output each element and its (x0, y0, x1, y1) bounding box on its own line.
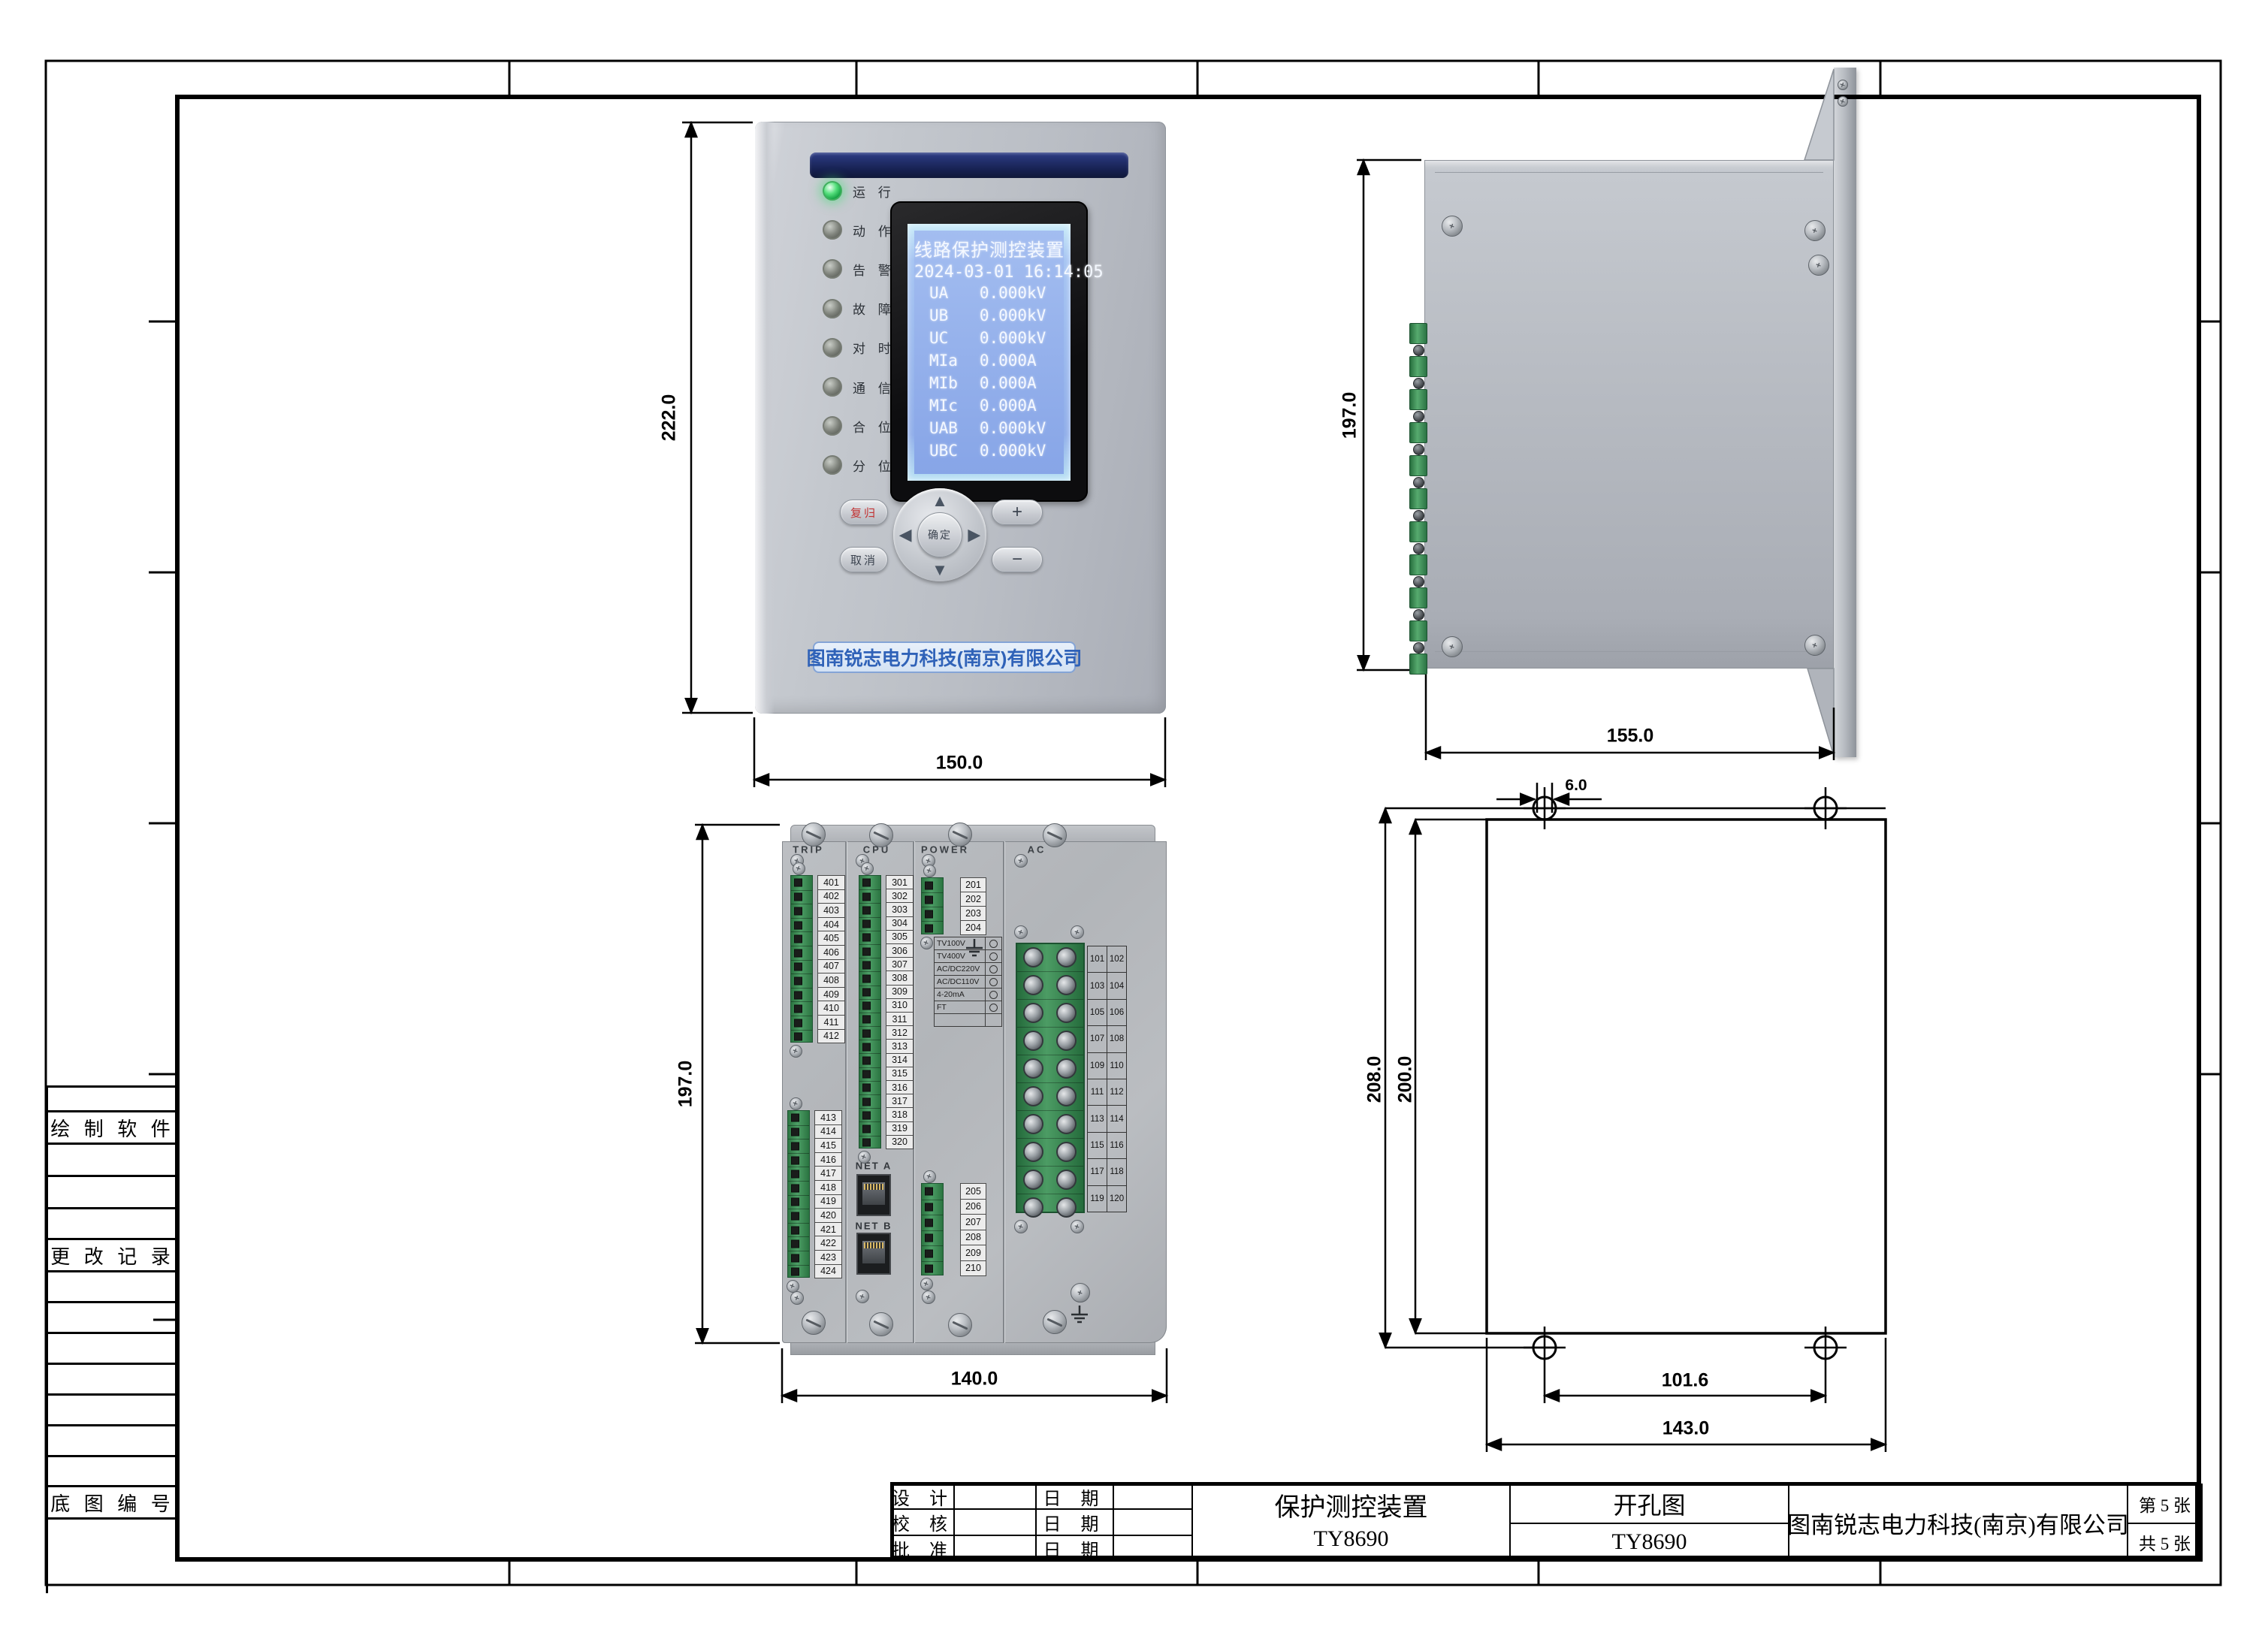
terminal-nub-icon (1409, 521, 1427, 542)
ac-screw-terminal-icon (1056, 947, 1077, 967)
slot-screw-icon (869, 1312, 893, 1336)
terminal-number: 404 (817, 917, 845, 932)
terminal-number: 313 (886, 1039, 914, 1053)
led-row: 动 作 (823, 220, 895, 240)
net-b-label: NET B (856, 1221, 892, 1232)
led-label: 动 作 (853, 221, 895, 240)
cross-screw-icon: + (790, 1291, 804, 1305)
date-label: 日 期 (1035, 1535, 1114, 1562)
terminal-number: 411 (817, 1015, 845, 1030)
ac-terminal-number: 114 (1107, 1106, 1126, 1131)
screw-slot (806, 830, 822, 839)
terminal-connector (790, 875, 813, 1043)
led-row: 对 时 (823, 338, 895, 358)
terminal-nub-icon (1409, 422, 1427, 443)
lcd-measurement-rows: UA0.000kVUB0.000kVUC0.000kVMIa0.000AMIb0… (914, 282, 1064, 462)
connector-screw-icon: + (790, 1045, 802, 1058)
config-option-mark (986, 950, 1001, 962)
lcd-value: 0.000 (980, 327, 1027, 349)
ac-terminal-number: 106 (1107, 1000, 1126, 1025)
terminal-cell (922, 1200, 943, 1215)
terminal-cell (788, 1223, 809, 1237)
lcd-unit: A (1027, 372, 1056, 394)
cross-screw-icon: + (1442, 636, 1463, 657)
terminal-number: 418 (814, 1180, 842, 1195)
terminal-number: 320 (886, 1135, 914, 1149)
config-option-mark (986, 963, 1001, 975)
terminal-number: 423 (814, 1250, 842, 1265)
wire-hole-icon (791, 1240, 799, 1248)
led-row: 分 位 (823, 455, 895, 475)
sidebar-cell (48, 1365, 177, 1396)
led-on-icon (823, 181, 842, 201)
ac-number-row: 119120 (1088, 1186, 1126, 1212)
sidebar-cell-base-no: 底 图 编 号 (48, 1487, 177, 1520)
ac-terminal-number: 113 (1088, 1106, 1107, 1131)
drawing-sheet: 线路保护测控装置 2024-03-01 16:14:05 UA0.000kVUB… (0, 0, 2268, 1630)
ac-number-row: 115116 (1088, 1133, 1126, 1159)
terminal-cell (791, 918, 812, 932)
ac-terminal-number-grid: 1011021031041051061071081091101111121131… (1087, 946, 1127, 1212)
terminal-screw-icon (1413, 510, 1424, 521)
lcd-channel: MIc (922, 394, 980, 417)
ac-terminal-row (1017, 1055, 1083, 1082)
terminal-number: 204 (960, 920, 986, 935)
drill-dimension-lines (1385, 783, 1886, 1452)
config-row: TV100V (935, 937, 1001, 950)
lcd-screen: 线路保护测控装置 2024-03-01 16:14:05 UA0.000kVUB… (908, 224, 1071, 481)
wire-hole-icon (862, 989, 871, 997)
wire-hole-icon (794, 1033, 802, 1041)
ac-screw-terminal-icon (1023, 1170, 1043, 1190)
ac-screw-terminal-icon (1056, 1114, 1077, 1134)
terminal-number: 305 (886, 930, 914, 944)
arrow-left-icon[interactable]: ◀ (899, 525, 912, 545)
wire-hole-icon (925, 881, 933, 889)
designer-value (953, 1484, 1037, 1510)
cross-screw-icon: + (1838, 96, 1848, 107)
terminal-number: 304 (886, 916, 914, 931)
sidebar-cell (48, 1457, 177, 1487)
wire-hole-icon (791, 1254, 799, 1262)
terminal-cell (788, 1251, 809, 1265)
ac-number-row: 113114 (1088, 1106, 1126, 1132)
lcd-channel: UB (922, 304, 980, 327)
company-name: 图南锐志电力科技(南京)有限公司 (1788, 1484, 2128, 1562)
wire-hole-icon (925, 1218, 933, 1227)
config-option-mark (986, 989, 1001, 1001)
terminal-cell (791, 1016, 812, 1030)
terminal-cell (859, 1136, 880, 1149)
terminal-cell (859, 1026, 880, 1040)
lcd-row: MIa0.000A (914, 349, 1064, 372)
terminal-number: 413 (814, 1110, 842, 1125)
config-row: 4-20mA (935, 989, 1001, 1001)
slot-screw-icon (1043, 823, 1067, 847)
brand-label: 图南锐志电力科技(南京)有限公司 (813, 641, 1076, 673)
ac-terminal-number: 118 (1107, 1159, 1126, 1185)
led-label: 运 行 (853, 182, 895, 201)
product-title-cell: 保护测控装置 TY8690 (1191, 1484, 1511, 1562)
terminal-cell (859, 958, 880, 971)
config-option-label (935, 1014, 986, 1026)
lcd-channel: UA (922, 282, 980, 304)
sheet-count: 共 5 张 (2127, 1523, 2203, 1562)
net-b-port[interactable] (856, 1233, 891, 1275)
side-width-dim: 155.0 (1607, 726, 1654, 747)
ac-number-row: 107108 (1088, 1026, 1126, 1052)
terminal-connector (787, 1110, 810, 1278)
sidebar-cell (48, 1520, 177, 1593)
terminal-number: 205 (960, 1183, 986, 1200)
wire-hole-icon (791, 1170, 799, 1179)
terminal-number: 208 (960, 1230, 986, 1246)
screw-slot (806, 1318, 822, 1327)
terminal-cell (791, 1030, 812, 1044)
slot-screw-icon (948, 1313, 972, 1337)
terminal-cell (859, 903, 880, 916)
terminal-cell (791, 876, 812, 890)
terminal-number: 424 (814, 1264, 842, 1279)
sidebar-cell (48, 1145, 177, 1177)
drill-width-dim: 143.0 (1662, 1418, 1710, 1440)
ac-terminal-number: 109 (1088, 1053, 1107, 1079)
arrow-down-icon[interactable]: ▼ (932, 560, 948, 580)
option-circle-icon (989, 978, 998, 986)
ac-screw-terminal-icon (1056, 1170, 1077, 1190)
lcd-value: 0.000 (980, 282, 1027, 304)
lcd-row: UC0.000kV (914, 327, 1064, 349)
product-name: 保护测控装置 (1275, 1493, 1428, 1525)
date-label: 日 期 (1035, 1484, 1114, 1510)
terminal-nub-icon (1409, 356, 1427, 377)
back-width-dim: 140.0 (951, 1369, 998, 1390)
wire-hole-icon (862, 892, 871, 901)
ac-number-row: 109110 (1088, 1053, 1126, 1079)
wire-hole-icon (794, 976, 802, 985)
ac-number-row: 105106 (1088, 1000, 1126, 1026)
lcd-row: UAB0.000kV (914, 417, 1064, 439)
terminal-cell (791, 960, 812, 974)
ac-screw-terminal-icon (1023, 1003, 1043, 1023)
cross-screw-icon: + (1808, 255, 1829, 276)
config-option-mark (986, 937, 1001, 949)
terminal-cell (859, 944, 880, 958)
lcd-row: UA0.000kV (914, 282, 1064, 304)
sidebar-cell (48, 1209, 177, 1240)
config-row: TV400V (935, 950, 1001, 963)
date-value (1113, 1484, 1193, 1510)
terminal-nub-icon (1409, 455, 1427, 476)
terminal-number: 315 (886, 1067, 914, 1081)
terminal-cell (791, 890, 812, 904)
terminal-cell (922, 1245, 943, 1261)
wire-hole-icon (794, 893, 802, 901)
lcd-channel: UBC (922, 439, 980, 462)
option-circle-icon (989, 991, 998, 999)
wire-hole-icon (791, 1184, 799, 1192)
cross-screw-icon: + (1014, 925, 1028, 939)
ac-terminal-number: 116 (1107, 1133, 1126, 1158)
drill-outer-height-dim: 208.0 (1364, 1056, 1386, 1103)
terminal-cell (859, 931, 880, 944)
terminal-number: 417 (814, 1166, 842, 1181)
arrow-up-icon[interactable]: ▲ (932, 491, 948, 511)
wire-hole-icon (794, 907, 802, 915)
terminal-cell (859, 971, 880, 985)
terminal-cell (791, 904, 812, 918)
ac-screw-terminal-icon (1056, 1197, 1077, 1218)
terminal-nub-icon (1409, 323, 1427, 344)
mounting-hole-icon (1524, 1327, 1566, 1369)
wire-hole-icon (794, 1019, 802, 1027)
ground-screw-icon: + (1071, 1283, 1090, 1302)
wire-hole-icon (862, 1029, 871, 1037)
wire-hole-icon (862, 920, 871, 928)
plus-button[interactable]: + (992, 500, 1043, 525)
terminal-cell (859, 876, 880, 889)
screw-slot (874, 1320, 889, 1329)
ac-terminal-number: 104 (1107, 973, 1126, 998)
ac-terminal-number: 101 (1088, 946, 1107, 972)
arrow-right-icon[interactable]: ▶ (968, 525, 980, 545)
config-option-mark (986, 976, 1001, 988)
terminal-connector (921, 877, 944, 934)
wire-hole-icon (862, 1016, 871, 1024)
connector-screw-icon: + (858, 1151, 871, 1164)
lcd-row: MIc0.000A (914, 394, 1064, 417)
ac-terminal-block (1016, 943, 1085, 1213)
cross-screw-icon: + (856, 1290, 869, 1303)
terminal-number: 301 (886, 875, 914, 889)
config-option-label: 4-20mA (935, 989, 986, 1001)
ac-screw-terminal-icon (1023, 947, 1043, 967)
led-label: 故 障 (853, 299, 895, 318)
date-value (1113, 1535, 1193, 1562)
wire-hole-icon (925, 925, 933, 933)
connector-screw-icon: + (923, 865, 936, 877)
terminal-cell (791, 973, 812, 988)
wire-hole-icon (791, 1268, 799, 1276)
side-height-dim: 197.0 (1339, 392, 1361, 439)
ac-number-row: 111112 (1088, 1079, 1126, 1106)
terminal-cell (859, 889, 880, 903)
ac-screw-terminal-icon (1023, 1197, 1043, 1218)
terminal-cell (859, 1067, 880, 1081)
config-row (935, 1014, 1001, 1026)
terminal-cell (788, 1111, 809, 1125)
terminal-cell (922, 921, 943, 935)
lcd-value: 0.000 (980, 417, 1027, 439)
connector-screw-icon: + (923, 1170, 936, 1183)
terminal-cell (788, 1139, 809, 1153)
terminal-cell (859, 1108, 880, 1121)
terminal-screw-icon (1413, 609, 1424, 620)
date-label: 日 期 (1035, 1508, 1114, 1536)
wire-hole-icon (862, 1097, 871, 1106)
ac-terminal-row (1017, 1194, 1083, 1221)
terminal-number: 311 (886, 1012, 914, 1026)
terminal-nub-icon (1409, 620, 1427, 641)
front-width-dim: 150.0 (936, 753, 983, 774)
wire-hole-icon (791, 1142, 799, 1150)
slot-screw-icon (1043, 1310, 1067, 1334)
lcd-value: 0.000 (980, 372, 1027, 394)
terminal-cell (922, 1184, 943, 1200)
terminal-cell (788, 1195, 809, 1209)
terminal-cell (791, 931, 812, 946)
connector-screw-icon: + (920, 937, 933, 949)
cancel-button[interactable]: 取消 (840, 547, 888, 572)
led-row: 故 障 (823, 299, 895, 318)
wire-hole-icon (862, 961, 871, 969)
minus-button[interactable]: − (992, 547, 1043, 572)
back-height-dim: 197.0 (675, 1061, 697, 1108)
wire-hole-icon (925, 910, 933, 919)
sidebar-cell (48, 1272, 177, 1303)
ac-screw-terminal-icon (1023, 1058, 1043, 1079)
lcd-unit: kV (1027, 439, 1056, 462)
designer-label: 设 计 (892, 1484, 955, 1510)
terminal-number: 415 (814, 1138, 842, 1153)
power-config-table: TV100VTV400VAC/DC220VAC/DC110V4-20mAFT (934, 937, 1002, 1027)
terminal-cell (791, 1001, 812, 1016)
terminal-cell (859, 917, 880, 931)
terminal-cell (922, 878, 943, 892)
confirm-button[interactable]: 确定 (917, 512, 962, 557)
ac-terminal-number: 119 (1088, 1186, 1107, 1212)
terminal-number: 420 (814, 1208, 842, 1223)
lcd-row: UBC0.000kV (914, 439, 1064, 462)
terminal-cell (791, 988, 812, 1002)
approver-label: 批 准 (892, 1535, 955, 1562)
terminal-cell (922, 1215, 943, 1230)
cross-screw-icon: + (1442, 216, 1463, 237)
drill-inner-height-dim: 200.0 (1395, 1056, 1417, 1103)
wire-hole-icon (925, 1203, 933, 1212)
ac-terminal-row (1017, 1110, 1083, 1138)
ac-terminal-row (1017, 999, 1083, 1027)
wire-hole-icon (862, 947, 871, 955)
case-edge-line (1435, 651, 1823, 652)
mounting-hole-icon (1804, 787, 1847, 829)
case-edge-line (1435, 172, 1823, 173)
connector-screw-icon: + (790, 1097, 802, 1110)
lcd-unit: kV (1027, 327, 1056, 349)
terminal-number: 314 (886, 1053, 914, 1067)
lcd-value: 0.000 (980, 304, 1027, 327)
terminal-number: 416 (814, 1152, 842, 1167)
ac-number-row: 117118 (1088, 1159, 1126, 1185)
wire-hole-icon (862, 906, 871, 914)
screw-slot (1047, 1318, 1063, 1327)
led-icon (823, 259, 842, 279)
ac-screw-terminal-icon (1056, 1142, 1077, 1162)
direction-pad[interactable]: ▲ ▼ ◀ ▶ 确定 (893, 488, 986, 581)
terminal-number: 316 (886, 1080, 914, 1094)
sheet-sidebar: 绘 制 软 件 更 改 记 录 底 图 编 号 (46, 1085, 177, 1593)
date-value (1113, 1508, 1193, 1536)
terminal-number: 203 (960, 906, 986, 921)
terminal-number: 319 (886, 1121, 914, 1136)
wire-hole-icon (862, 879, 871, 887)
front-view-panel: 线路保护测控装置 2024-03-01 16:14:05 UA0.000kVUB… (755, 122, 1166, 714)
terminal-number: 409 (817, 987, 845, 1002)
ac-terminal-number: 108 (1107, 1026, 1126, 1052)
wire-hole-icon (862, 1057, 871, 1065)
terminal-number: 421 (814, 1222, 842, 1237)
lcd-datetime: 2024-03-01 16:14:05 (914, 263, 1064, 282)
terminal-cell (788, 1265, 809, 1279)
lcd-unit: kV (1027, 282, 1056, 304)
screw-slot (953, 830, 968, 839)
cross-screw-icon: + (1071, 925, 1084, 939)
cross-screw-icon: + (1804, 220, 1826, 241)
terminal-cell (788, 1181, 809, 1195)
wire-hole-icon (925, 896, 933, 904)
slot-screw-icon (802, 823, 826, 847)
ac-terminal-row (1017, 1027, 1083, 1055)
wire-hole-icon (862, 974, 871, 983)
terminal-nub-icon (1409, 587, 1427, 608)
cutout-rectangle (1487, 820, 1886, 1333)
terminal-screw-icon (1413, 642, 1424, 654)
ac-screw-terminal-icon (1023, 1031, 1043, 1051)
wire-hole-icon (791, 1226, 799, 1234)
screw-slot (874, 831, 889, 840)
ac-terminal-number: 110 (1107, 1053, 1126, 1079)
wire-hole-icon (794, 963, 802, 971)
terminal-screw-icon (1413, 378, 1424, 389)
ac-terminal-number: 107 (1088, 1026, 1107, 1052)
terminal-number: 401 (817, 875, 845, 890)
ac-terminal-number: 117 (1088, 1159, 1107, 1185)
ac-terminal-row (1017, 1082, 1083, 1110)
terminal-number: 408 (817, 973, 845, 988)
terminal-number: 306 (886, 943, 914, 958)
terminal-number: 308 (886, 970, 914, 985)
terminal-connector (921, 1183, 944, 1275)
net-a-port[interactable] (856, 1174, 891, 1216)
wire-hole-icon (862, 1111, 871, 1119)
reset-button[interactable]: 复归 (840, 500, 888, 525)
terminal-screw-icon (1413, 411, 1424, 422)
sidebar-cell (48, 1303, 177, 1334)
led-row: 通 信 (823, 377, 895, 397)
cross-screw-icon: + (1804, 635, 1826, 656)
terminal-nub-icon (1409, 554, 1427, 575)
terminal-number: 318 (886, 1107, 914, 1121)
config-row: AC/DC110V (935, 976, 1001, 989)
terminal-cell (788, 1153, 809, 1167)
ac-terminal-number: 112 (1107, 1079, 1126, 1105)
cross-screw-icon: + (1014, 1220, 1028, 1233)
option-circle-icon (989, 952, 998, 961)
drawing-name: 开孔图 (1509, 1484, 1789, 1524)
config-option-label: TV100V (935, 937, 986, 949)
screw-slot (1047, 831, 1063, 840)
title-block: 设 计 日 期 校 核 日 期 批 准 日 期 保护测控装置 TY8690 开孔… (890, 1482, 2199, 1559)
terminal-number: 310 (886, 998, 914, 1013)
wire-hole-icon (791, 1128, 799, 1136)
module-label-ac: AC (1028, 844, 1046, 856)
wire-hole-icon (925, 1265, 933, 1273)
side-view-front-flange (1834, 68, 1856, 757)
back-view-bottom-tab (790, 1342, 1155, 1355)
led-icon (823, 377, 842, 397)
terminal-cell (788, 1236, 809, 1251)
terminal-cell (859, 1094, 880, 1108)
